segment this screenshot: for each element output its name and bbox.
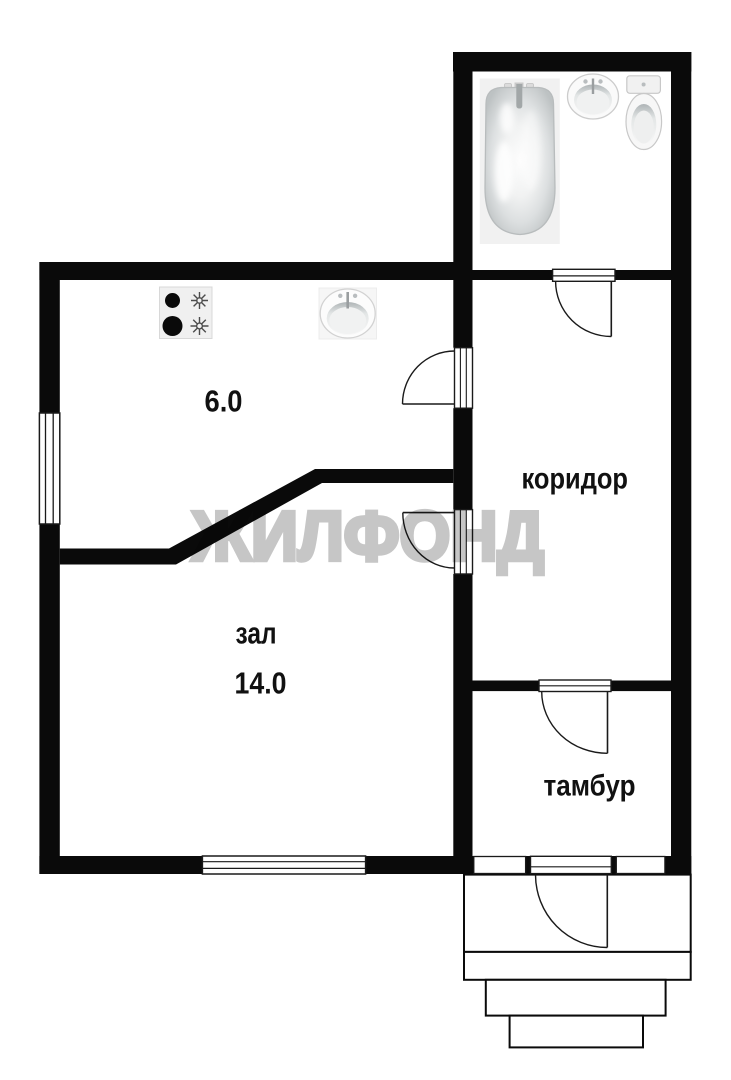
svg-text:коридор: коридор <box>522 463 629 496</box>
svg-text:тамбур: тамбур <box>544 769 636 802</box>
svg-text:ЖИЛФОНД: ЖИЛФОНД <box>191 497 544 575</box>
svg-text:14.0: 14.0 <box>235 665 287 700</box>
svg-text:6.0: 6.0 <box>205 384 243 419</box>
svg-text:зал: зал <box>236 616 277 651</box>
